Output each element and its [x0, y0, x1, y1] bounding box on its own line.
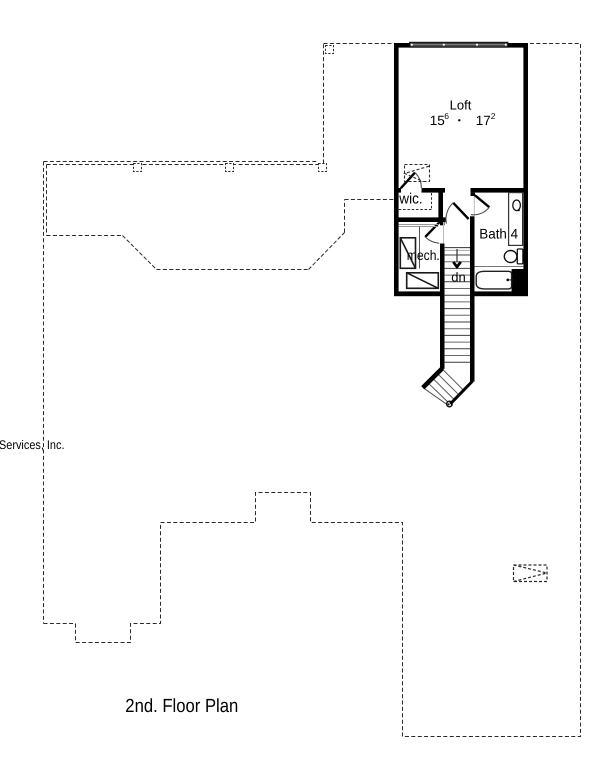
- svg-text:2: 2: [491, 111, 496, 121]
- svg-text:wic.: wic.: [398, 191, 422, 208]
- svg-text:Bath 4: Bath 4: [479, 226, 518, 242]
- svg-text:dn: dn: [451, 269, 465, 284]
- svg-text:mech.: mech.: [407, 247, 440, 263]
- svg-text:Loft: Loft: [450, 97, 472, 112]
- svg-text:Services, Inc.: Services, Inc.: [0, 438, 65, 452]
- svg-text:15: 15: [430, 113, 445, 128]
- svg-text:17: 17: [476, 113, 491, 128]
- svg-text:6: 6: [444, 111, 449, 121]
- svg-text:2nd. Floor Plan: 2nd. Floor Plan: [125, 696, 238, 717]
